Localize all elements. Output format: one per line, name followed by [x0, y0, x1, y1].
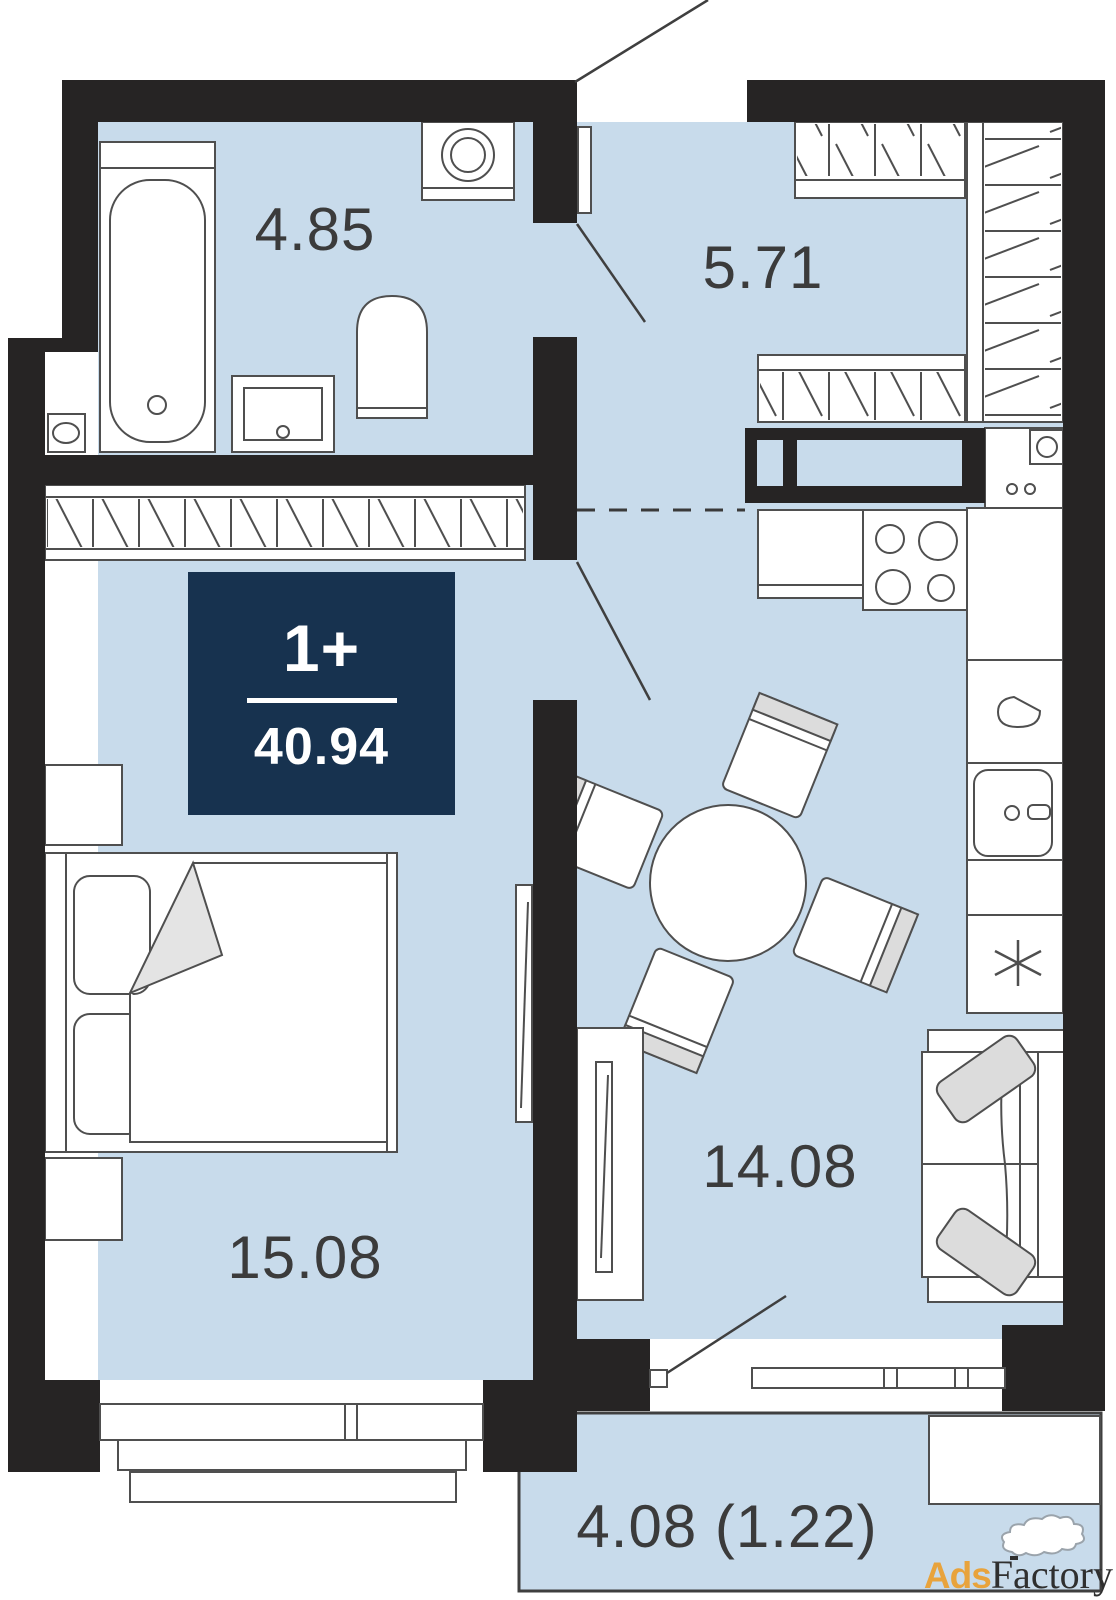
entrance-door-swing — [575, 0, 708, 82]
floor-plan-drawing — [0, 0, 1116, 1600]
balcony-bench — [929, 1416, 1100, 1504]
kitchen-sink — [974, 770, 1052, 856]
wardrobe-hall-right — [967, 122, 1063, 422]
watermark-factory: Factory — [991, 1551, 1113, 1598]
floor-plan-page: 4.85 5.71 15.08 14.08 4.08 (1.22) 1+ 40.… — [0, 0, 1116, 1600]
kitchen-corner-unit — [985, 428, 1063, 508]
wardrobe-hall-bottom — [758, 355, 965, 422]
nightstand — [45, 1158, 122, 1240]
room-label-bathroom: 4.85 — [255, 200, 376, 260]
tv-bedroom — [516, 885, 532, 1122]
nightstand — [45, 765, 122, 845]
room-label-kitchen-living: 14.08 — [702, 1137, 857, 1197]
wardrobe-bedroom-wall — [45, 485, 525, 560]
watermark: AdsFactory — [924, 1551, 1113, 1598]
apartment-info-badge: 1+ 40.94 — [188, 572, 455, 815]
water-meter-box — [48, 414, 85, 452]
living-room-window — [752, 1368, 1005, 1388]
badge-total-area: 40.94 — [254, 717, 389, 777]
bathtub — [100, 142, 215, 452]
bathroom-sink — [232, 376, 334, 452]
watermark-ads: Ads — [924, 1555, 991, 1597]
room-label-hallway: 5.71 — [703, 238, 824, 298]
wardrobe-hall-top — [795, 122, 965, 198]
bedroom-window — [100, 1404, 483, 1502]
tv-stand-living — [577, 1028, 643, 1300]
stove — [863, 510, 967, 610]
badge-rooms-count: 1+ — [283, 610, 360, 686]
toilet — [357, 296, 427, 418]
washing-machine-icon — [422, 122, 514, 200]
room-label-balcony: 4.08 (1.22) — [576, 1497, 877, 1557]
bed — [45, 853, 397, 1152]
room-label-bedroom: 15.08 — [227, 1228, 382, 1288]
badge-divider — [247, 698, 397, 703]
sofa — [922, 1030, 1065, 1302]
